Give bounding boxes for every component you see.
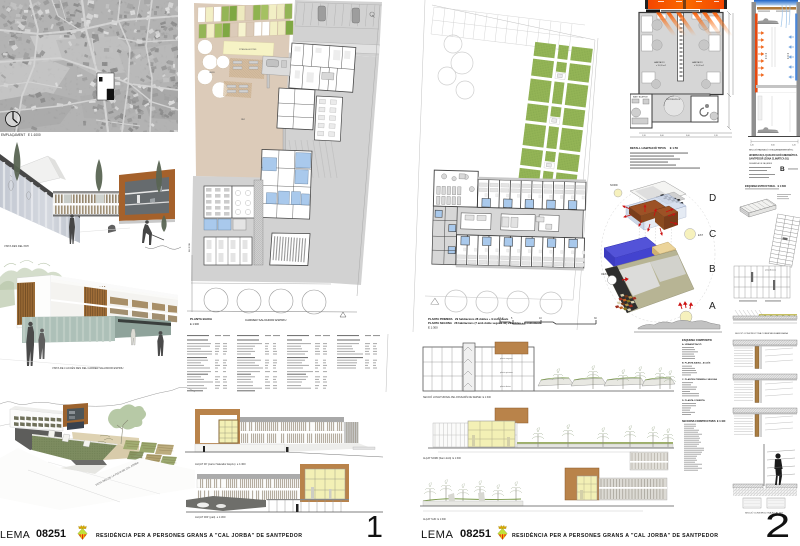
svg-text:ALÇAT NORD (Sant Jordi) E 1:: ALÇAT NORD (Sant Jordi) E 1:300 xyxy=(423,457,461,460)
svg-text:D. PLANTA COBERTA: D. PLANTA COBERTA xyxy=(682,399,705,402)
svg-text:HABITACIÓ: HABITACIÓ xyxy=(692,61,703,64)
svg-text:3,60: 3,60 xyxy=(686,135,690,137)
svg-text:planta baixa: planta baixa xyxy=(500,385,512,388)
svg-text:planta primera: planta primera xyxy=(500,371,514,374)
svg-text:HABITACIÓ: HABITACIÓ xyxy=(654,61,665,64)
svg-text:E 1:300: E 1:300 xyxy=(428,326,438,330)
svg-text:B: B xyxy=(709,264,716,275)
svg-text:s 19,20 m2: s 19,20 m2 xyxy=(656,65,667,67)
svg-text:ESQUEMA COMPOSITIU: ESQUEMA COMPOSITIU xyxy=(682,338,712,342)
svg-text:NORD: NORD xyxy=(610,183,618,187)
svg-text:PITANGA HORTES: PITANGA HORTES xyxy=(239,48,257,51)
svg-text:junta dilatacio: junta dilatacio xyxy=(764,269,776,272)
svg-text:30: 30 xyxy=(594,317,597,320)
svg-text:1,20: 1,20 xyxy=(750,145,754,147)
svg-text:PLANTA BAIXA: PLANTA BAIXA xyxy=(190,317,213,321)
svg-text:SANTPEDOR (ZONA CLIMÀTICA D1): SANTPEDOR (ZONA CLIMÀTICA D1) xyxy=(749,157,789,160)
svg-text:1,20: 1,20 xyxy=(792,145,796,147)
svg-text:PATI: PATI xyxy=(241,118,246,121)
svg-text:HIVERN FAÇA QUALIFICACIÓ ENER: HIVERN FAÇA QUALIFICACIÓ ENERGÈTICA xyxy=(749,154,798,157)
svg-text:3,60: 3,60 xyxy=(660,135,664,137)
svg-text:DEMANDA DE FAÇANES: DEMANDA DE FAÇANES xyxy=(749,162,773,165)
svg-text:10: 10 xyxy=(539,317,542,320)
svg-text:3,60: 3,60 xyxy=(771,145,775,147)
svg-text:D: D xyxy=(709,193,716,204)
svg-text:planta segona: planta segona xyxy=(500,357,513,360)
svg-text:0 1 2: 0 1 2 xyxy=(498,317,504,320)
svg-text:SECCIÓ HABITACIÓ I ESQUEMA ENE: SECCIÓ HABITACIÓ I ESQUEMA ENERGÈTIC xyxy=(749,149,794,152)
svg-text:DETALL HABITACIÓ TIPUS E: DETALL HABITACIÓ TIPUS E 1:50 xyxy=(630,145,678,150)
svg-text:B. PLANTA BAIXA - ACCÉS: B. PLANTA BAIXA - ACCÉS xyxy=(682,362,711,365)
svg-text:ALÇAT 00' (carrer Salvador Esp: ALÇAT 00' (carrer Salvador Espriu) e 1:3… xyxy=(195,462,246,466)
svg-text:1,20: 1,20 xyxy=(714,135,718,137)
svg-text:s 19,20 m2: s 19,20 m2 xyxy=(694,65,705,67)
svg-text:5: 5 xyxy=(511,317,513,320)
svg-text:SECCIONS CONSTRUCTIVES E 1:10: SECCIONS CONSTRUCTIVES E 1:100 xyxy=(682,420,726,423)
svg-text:CARRER SALVADOR ESPRIU: CARRER SALVADOR ESPRIU xyxy=(245,318,286,322)
svg-text:OEST: OEST xyxy=(601,272,608,276)
svg-text:EST: EST xyxy=(698,233,703,237)
svg-text:SECCIÓ CONSTRUCTIVA COBERTA EN: SECCIÓ CONSTRUCTIVA COBERTA ENJARDINADA xyxy=(735,332,788,335)
svg-text:A: A xyxy=(709,301,716,312)
svg-text:DISTRIBUÏDOR: DISTRIBUÏDOR xyxy=(666,98,681,101)
svg-text:C: C xyxy=(709,229,716,240)
svg-text:1,20: 1,20 xyxy=(642,135,646,137)
svg-text:A. URBANITZACIÓ: A. URBANITZACIÓ xyxy=(682,343,702,346)
svg-text:SECCIÓ LONGITUDINAL PEL PASSAD: SECCIÓ LONGITUDINAL PEL PASSADÍS DE SERV… xyxy=(423,396,492,399)
svg-text:E 1:300: E 1:300 xyxy=(190,322,199,326)
svg-text:C. PLANTES PRIMERA I SEGONA: C. PLANTES PRIMERA I SEGONA xyxy=(682,378,717,381)
svg-text:B: B xyxy=(780,166,785,173)
svg-text:BANY ADAPTAT: BANY ADAPTAT xyxy=(633,96,649,99)
svg-text:RIU D'OR: RIU D'OR xyxy=(189,243,191,252)
svg-text:ESQUEMA ESTRUCTURAL E 1:600: ESQUEMA ESTRUCTURAL E 1:600 xyxy=(745,185,787,188)
svg-text:JARDÍ: JARDÍ xyxy=(209,71,215,74)
